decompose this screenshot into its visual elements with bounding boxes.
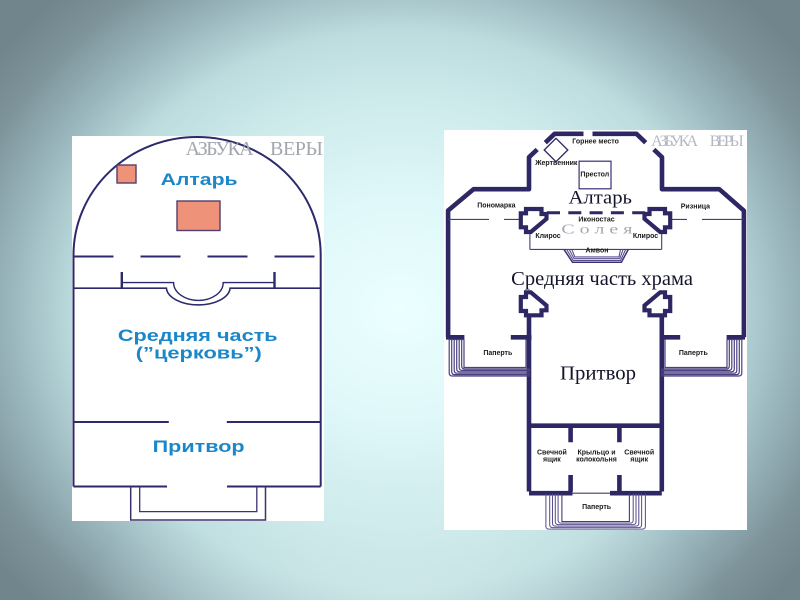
svg-text:Алтарь: Алтарь: [569, 189, 633, 209]
svg-text:Клирос: Клирос: [633, 233, 658, 240]
svg-text:колокольня: колокольня: [576, 457, 617, 464]
svg-text:ВЕРЫ: ВЕРЫ: [710, 133, 744, 150]
svg-text:Паперть: Паперть: [679, 350, 709, 357]
svg-text:Жертвенник: Жертвенник: [534, 160, 578, 167]
svg-text:Средняя часть: Средняя часть: [118, 326, 278, 345]
svg-text:Притвор: Притвор: [560, 363, 636, 385]
svg-text:ВЕРЫ: ВЕРЫ: [270, 138, 323, 160]
svg-text:Притвор: Притвор: [153, 437, 245, 456]
svg-text:(”церковь”): (”церковь”): [136, 344, 262, 363]
svg-text:Средняя часть храма: Средняя часть храма: [511, 268, 693, 290]
svg-text:ящик: ящик: [543, 457, 561, 464]
svg-text:Ризница: Ризница: [681, 204, 710, 211]
svg-text:Престол: Престол: [580, 171, 609, 178]
svg-text:Пономарка: Пономарка: [477, 202, 515, 209]
svg-text:Алтарь: Алтарь: [161, 170, 238, 189]
svg-text:АЗБУКА: АЗБУКА: [186, 138, 255, 160]
svg-text:С о л е я: С о л е я: [561, 223, 633, 238]
svg-text:Крыльцо и: Крыльцо и: [577, 450, 615, 457]
svg-text:ящик: ящик: [630, 457, 648, 464]
svg-text:Свечной: Свечной: [537, 449, 567, 457]
svg-text:Паперть: Паперть: [483, 350, 513, 357]
svg-text:Амвон: Амвон: [586, 248, 609, 255]
svg-text:Свечной: Свечной: [624, 449, 654, 457]
svg-text:Горнее место: Горнее место: [572, 139, 619, 146]
svg-text:АЗБУКА: АЗБУКА: [651, 133, 698, 150]
svg-text:Паперть: Паперть: [582, 504, 612, 511]
svg-text:Клирос: Клирос: [535, 233, 560, 240]
